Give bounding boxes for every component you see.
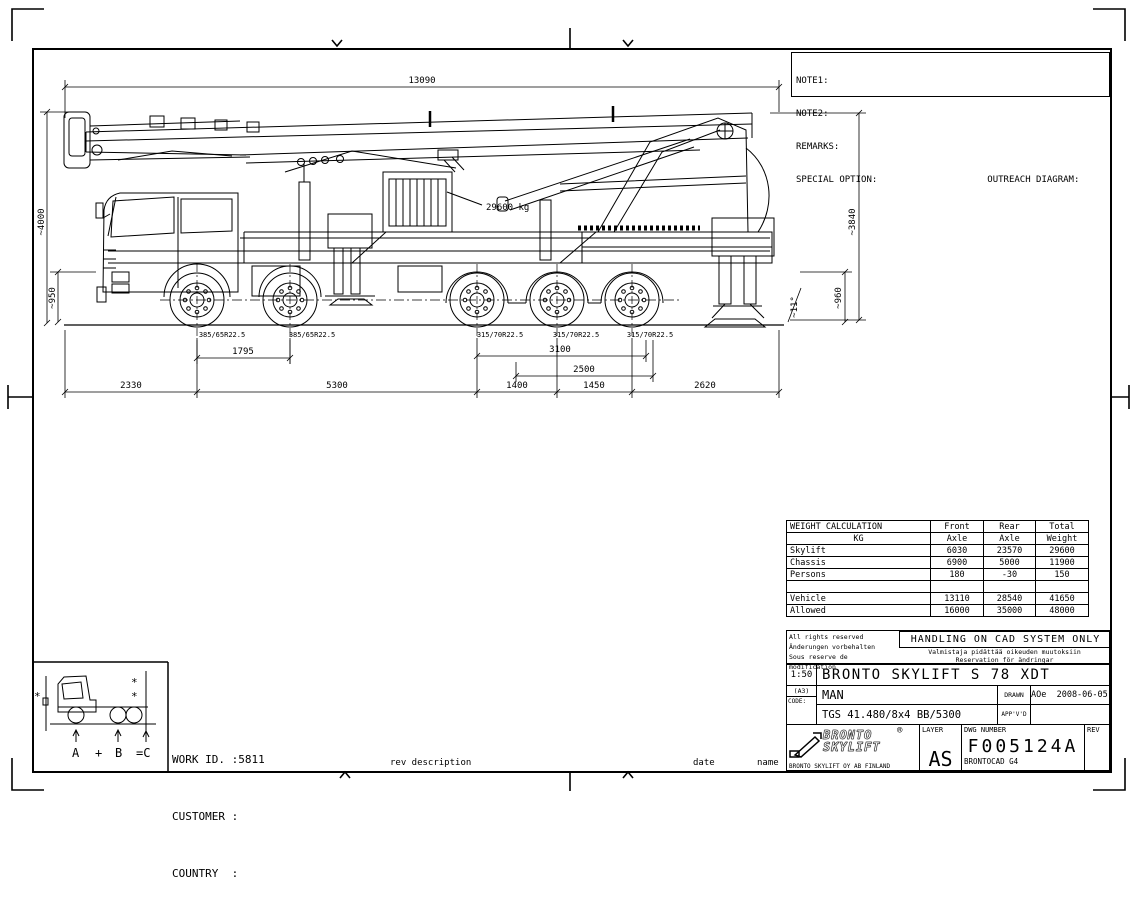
logo-text: BRONTO SKYLIFT (823, 729, 881, 753)
dim-rear-overhang: 2620 (694, 381, 716, 391)
work-info: WORK ID. :5811 CUSTOMER : COUNTRY : (172, 712, 265, 902)
col-header: Axle (984, 533, 1036, 545)
handling-sub-line: Reservation för ändringar (899, 656, 1110, 664)
axle-label-b: B (115, 746, 122, 760)
chassis-make: MAN (817, 686, 998, 705)
table-row: Chassis 6900 5000 11900 (787, 557, 1089, 569)
cell-label: Allowed (787, 605, 931, 617)
cell-front: 13110 (931, 593, 984, 605)
weight-calculation-table: WEIGHT CALCULATION Front Rear Total KG A… (786, 520, 1089, 617)
col-header: Front (931, 521, 984, 533)
cad-system-label: BRONTOCAD G4 (962, 757, 1084, 766)
logo-line2: SKYLIFT (823, 741, 881, 753)
cell-label: Chassis (787, 557, 931, 569)
outreach-diagram-label: OUTREACH DIAGRAM: (987, 175, 1079, 186)
note2-label: NOTE2: (796, 109, 1105, 120)
tire-label-rear-1: 315/70R22.5 (477, 331, 523, 339)
rev-cell: REV (1085, 725, 1111, 772)
cad-drawing-sheet: { "notes_box": { "note1": "NOTE1:", "not… (0, 0, 1137, 800)
axle-asterisk-left: * (34, 690, 41, 703)
axle-load-diagram: * * * A + B =C (32, 662, 168, 771)
cell-total: 29600 (1036, 545, 1089, 557)
scale-cell: 1:50 (787, 665, 817, 686)
cell-total: 150 (1036, 569, 1089, 581)
cell-rear: 28540 (984, 593, 1036, 605)
tire-label-rear-3: 315/70R22.5 (627, 331, 673, 339)
layer-value: AS (920, 747, 961, 771)
remarks-label: REMARKS: (796, 142, 1105, 153)
dim-rear-spacing-1: 1400 (506, 381, 528, 391)
col-header: KG (787, 533, 931, 545)
note1-label: NOTE1: (796, 76, 1105, 87)
special-option-label: SPECIAL OPTION: (796, 175, 877, 186)
dim-rear-spacing-2: 1450 (583, 381, 605, 391)
approved-value-empty (1031, 705, 1111, 725)
table-row (787, 581, 1089, 593)
chassis-model: TGS 41.480/8x4 BB/5300 (817, 705, 998, 725)
layer-cell: LAYER AS (920, 725, 962, 772)
drawn-label: DRAWN (998, 686, 1031, 705)
company-logo: BRONTO SKYLIFT ® BRONTO SKYLIFT OY AB FI… (787, 725, 920, 772)
table-header-row: WEIGHT CALCULATION Front Rear Total (787, 521, 1089, 533)
col-header: Weight (1036, 533, 1089, 545)
handling-sub-line: Valmistaja pidättää oikeuden muutoksiin (899, 648, 1110, 656)
cell-front: 6900 (931, 557, 984, 569)
cell-label: Persons (787, 569, 931, 581)
dwg-number-value: F005124A (962, 736, 1084, 757)
dim-height-left: ~4000 (37, 208, 47, 235)
table-row: Skylift 6030 23570 29600 (787, 545, 1089, 557)
tire-label-front-2: 385/65R22.5 (289, 331, 335, 339)
cell-total: 41650 (1036, 593, 1089, 605)
work-id-value: 5811 (238, 753, 265, 766)
table-row: Persons 180 -30 150 (787, 569, 1089, 581)
dim-height-right: ~3840 (848, 208, 858, 235)
cell-total: 11900 (1036, 557, 1089, 569)
dim-rear-to-jack: 2500 (573, 365, 595, 375)
dim-rear-axle-spread: 3100 (549, 345, 571, 355)
drawn-value: AOe 2008-06-05 (1031, 686, 1111, 705)
cell-front (931, 581, 984, 593)
approved-label: APP'V'D (998, 705, 1031, 725)
notes-box: NOTE1: NOTE2: REMARKS: SPECIAL OPTION: O… (791, 52, 1110, 97)
dwg-number-label: DWG NUMBER (962, 725, 1084, 735)
cell-total (1036, 581, 1089, 593)
dim-front-overhang: 2330 (120, 381, 142, 391)
handling-sub-lines: Valmistaja pidättää oikeuden muutoksiin … (899, 648, 1110, 664)
dim-wheelbase: 5300 (326, 381, 348, 391)
cell-front: 16000 (931, 605, 984, 617)
col-header: Axle (931, 533, 984, 545)
cell-front: 180 (931, 569, 984, 581)
layer-label: LAYER (920, 725, 961, 735)
dwg-number-cell: DWG NUMBER F005124A BRONTOCAD G4 (962, 725, 1085, 772)
rev-description-label: rev description (390, 758, 471, 768)
work-id-label: WORK ID. : (172, 753, 238, 766)
dim-overall-length: 13090 (408, 76, 435, 86)
cell-total: 48000 (1036, 605, 1089, 617)
axle-label-a: A (72, 746, 80, 760)
axle-asterisk-right-top: * (131, 676, 138, 689)
col-header: Total (1036, 521, 1089, 533)
rights-line: All rights reserved (789, 632, 897, 642)
cell-label: Skylift (787, 545, 931, 557)
company-name: BRONTO SKYLIFT OY AB FINLAND (789, 763, 890, 770)
country-line: COUNTRY : (172, 864, 265, 883)
drawing-title: BRONTO SKYLIFT S 78 XDT (817, 665, 1111, 686)
col-header: Rear (984, 521, 1036, 533)
handling-banner: HANDLING ON CAD SYSTEM ONLY (899, 631, 1112, 648)
axle-plus: + (95, 746, 102, 760)
table-header-row: KG Axle Axle Weight (787, 533, 1089, 545)
cell-rear (984, 581, 1036, 593)
cell-rear: 35000 (984, 605, 1036, 617)
axle-label-c: =C (136, 746, 150, 760)
rights-line: Änderungen vorbehalten (789, 642, 897, 652)
date-label: date (693, 758, 715, 768)
truck-side-view (64, 106, 784, 336)
tire-label-front-1: 385/65R22.5 (199, 331, 245, 339)
dim-clearance-left: ~950 (48, 287, 58, 309)
title-block: 1:50 BRONTO SKYLIFT S 78 XDT (A3) CODE: … (786, 664, 1110, 771)
cell-label (787, 581, 931, 593)
cell-label: Vehicle (787, 593, 931, 605)
dim-front-axle-spacing: 1795 (232, 347, 254, 357)
customer-line: CUSTOMER : (172, 807, 265, 826)
name-label: name (757, 758, 779, 768)
cell-rear: 23570 (984, 545, 1036, 557)
table-row: Vehicle 13110 28540 41650 (787, 593, 1089, 605)
axle-asterisk-right-bottom: * (131, 690, 138, 703)
cell-front: 6030 (931, 545, 984, 557)
code-cell: CODE: (787, 697, 817, 725)
tire-label-rear-2: 315/70R22.5 (553, 331, 599, 339)
dim-jack-angle: ~11° (790, 296, 800, 318)
logo-lift-icon (787, 725, 823, 759)
col-header: WEIGHT CALCULATION (787, 521, 931, 533)
legal-box: All rights reserved Änderungen vorbehalt… (786, 630, 1110, 664)
dim-clearance-right: ~960 (834, 287, 844, 309)
registered-mark: ® (897, 726, 902, 736)
sheet-size-cell: (A3) (787, 686, 817, 697)
cell-rear: 5000 (984, 557, 1036, 569)
cell-rear: -30 (984, 569, 1036, 581)
table-row: Allowed 16000 35000 48000 (787, 605, 1089, 617)
payload-label: 29600 kg (486, 203, 529, 213)
work-id-line: WORK ID. :5811 (172, 750, 265, 769)
